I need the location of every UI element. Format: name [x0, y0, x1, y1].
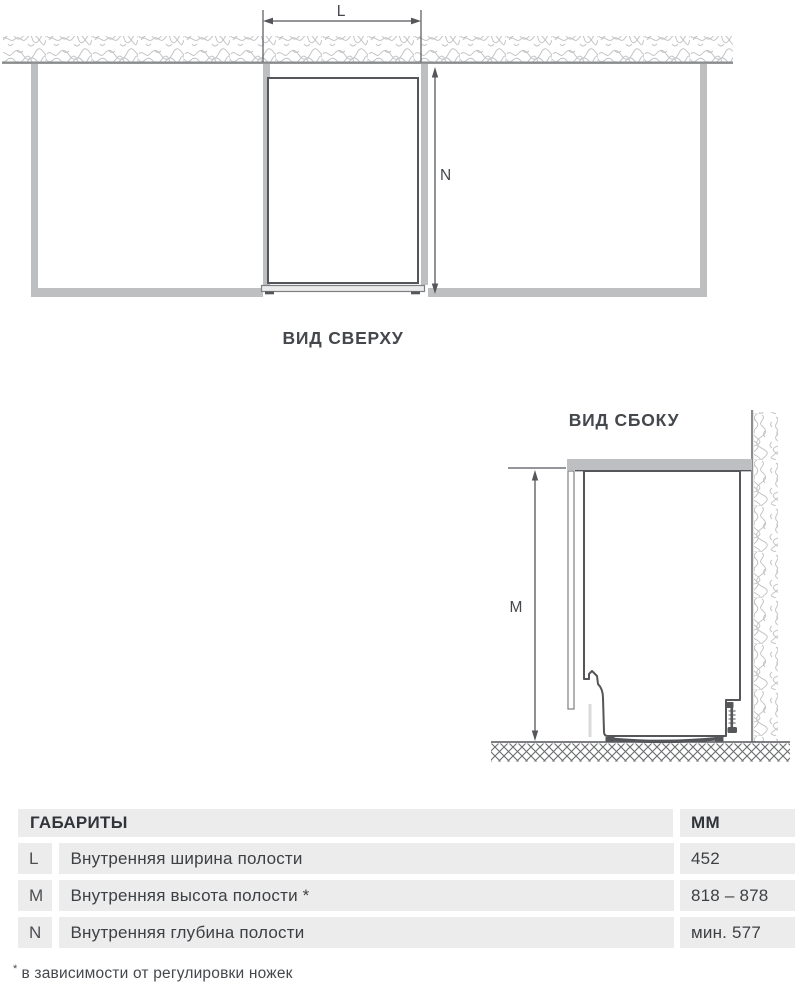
appliance-body-top [268, 78, 418, 283]
top-wall-hatch [3, 36, 733, 62]
rear-foot [715, 737, 724, 741]
installation-diagram-page: L N ВИД СВЕРХУ ВИД СБОКУ [0, 0, 808, 1000]
left-cabinet-front [31, 288, 263, 297]
row-l-value: 452 [680, 843, 795, 874]
dimension-n-label: N [440, 167, 451, 184]
dimension-m-label: M [510, 599, 523, 616]
row-n-value: мин. 577 [680, 917, 795, 948]
base-plate [608, 739, 719, 742]
top-wall-face-line [2, 62, 733, 64]
top-view-caption: ВИД СВЕРХУ [282, 328, 403, 348]
top-view-diagram: L N ВИД СВЕРХУ [2, 3, 733, 348]
row-l-label: Внутренняя ширина полости [59, 843, 674, 874]
dimensions-table: ГАБАРИТЫ ММ L Внутренняя ширина полости … [18, 809, 795, 954]
door-lower-edge [589, 704, 592, 737]
niche-right-wall [421, 64, 428, 285]
row-n-key: N [18, 917, 52, 948]
arrow-right-icon [411, 18, 421, 25]
screw-base [728, 727, 738, 733]
side-wall-hatch [754, 412, 778, 742]
appliance-body-side [584, 471, 740, 736]
door-hinge-left [265, 292, 274, 295]
appliance-door-side [568, 471, 574, 709]
dimension-l-label: L [337, 3, 346, 20]
right-cabinet-front [428, 288, 707, 297]
side-view-diagram: ВИД СБОКУ [491, 410, 790, 762]
table-header-unit: ММ [680, 809, 795, 837]
appliance-door-top [262, 286, 425, 292]
row-m-value: 818 – 878 [680, 880, 795, 911]
arrow-up-icon [532, 470, 538, 481]
row-l-key: L [18, 843, 52, 874]
right-cabinet-side [700, 64, 707, 297]
dimension-m: M [508, 468, 566, 741]
row-n-label: Внутренняя глубина полости [59, 917, 674, 948]
table-row: N Внутренняя глубина полости мин. 577 [18, 917, 795, 948]
ground-hatch [491, 744, 790, 762]
table-row: M Внутренняя высота полости * 818 – 878 [18, 880, 795, 911]
table-header-title: ГАБАРИТЫ [18, 809, 673, 837]
table-header-row: ГАБАРИТЫ ММ [18, 809, 795, 837]
door-hinge-right [411, 292, 420, 295]
arrow-up-icon [432, 67, 438, 78]
left-cabinet-side [31, 64, 38, 297]
diagrams-canvas: L N ВИД СВЕРХУ ВИД СБОКУ [0, 0, 808, 795]
footnote: *в зависимости от регулировки ножек [13, 963, 293, 983]
front-foot [606, 737, 615, 742]
row-m-label: Внутренняя высота полости * [59, 880, 674, 911]
countertop [567, 459, 752, 470]
side-view-caption: ВИД СБОКУ [569, 410, 680, 430]
footnote-marker: * [13, 963, 17, 975]
footnote-text: в зависимости от регулировки ножек [21, 965, 292, 982]
table-row: L Внутренняя ширина полости 452 [18, 843, 795, 874]
dimension-n: N [432, 67, 451, 294]
arrow-left-icon [263, 18, 273, 25]
row-m-key: M [18, 880, 52, 911]
levelling-screw [727, 702, 738, 733]
arrow-down-icon [532, 731, 538, 742]
